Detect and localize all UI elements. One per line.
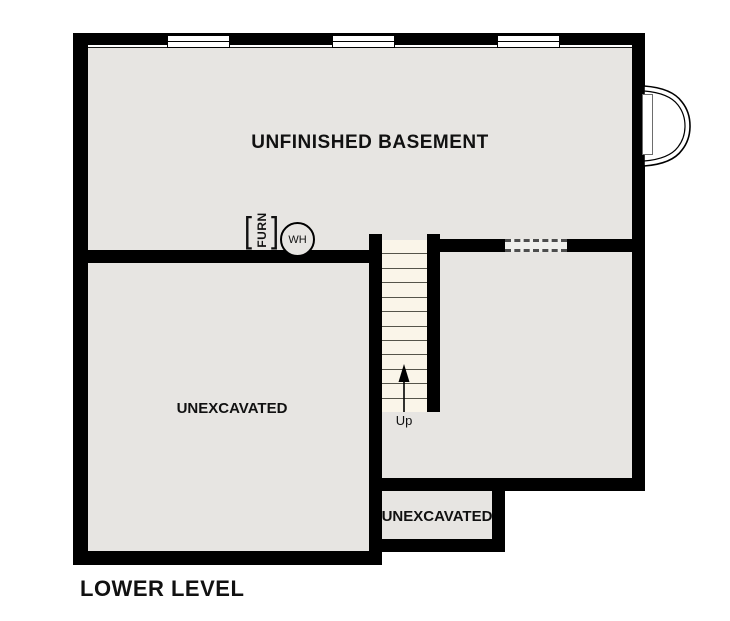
stair-tread — [382, 240, 427, 254]
left-unexcavated-label: UNEXCAVATED — [152, 400, 312, 417]
stair-tread — [382, 341, 427, 355]
furnace-bracket-right: ] — [271, 212, 279, 248]
stair-tread — [382, 269, 427, 283]
wall-left — [73, 33, 88, 565]
window-pane-line — [168, 41, 229, 42]
plan-title: LOWER LEVEL — [80, 576, 244, 602]
floor-plan: Up [ FURN ] WH UNFINISHED BASEMENT UNEXC… — [0, 0, 730, 621]
stairs-up-label: Up — [386, 413, 422, 428]
basement-room-label: UNFINISHED BASEMENT — [230, 132, 510, 154]
wall-left-room-bottom — [73, 551, 382, 565]
window-icon — [332, 35, 395, 48]
furnace-bracket-left: [ — [244, 212, 252, 248]
window-icon — [167, 35, 230, 48]
up-arrow-icon — [396, 362, 412, 414]
wall-small-room-bottom — [369, 539, 505, 552]
water-heater-icon: WH — [280, 222, 315, 257]
window-icon — [497, 35, 560, 48]
small-unexcavated-label: UNEXCAVATED — [379, 508, 495, 525]
window-pane-line — [333, 41, 394, 42]
water-heater-label: WH — [288, 234, 306, 246]
egress-window-icon — [642, 94, 653, 155]
stair-tread — [382, 254, 427, 268]
wall-right-room-bottom — [369, 478, 645, 491]
furnace-label: FURN — [255, 212, 269, 247]
wall-basement-left-divider — [73, 250, 382, 263]
stair-tread — [382, 327, 427, 341]
window-pane-line — [498, 41, 559, 42]
dashed-opening — [505, 239, 567, 252]
furnace-icon: [ FURN ] — [243, 210, 280, 250]
stair-tread — [382, 312, 427, 326]
stair-tread — [382, 283, 427, 297]
stair-tread — [382, 298, 427, 312]
wall-stairs-right — [427, 234, 440, 412]
